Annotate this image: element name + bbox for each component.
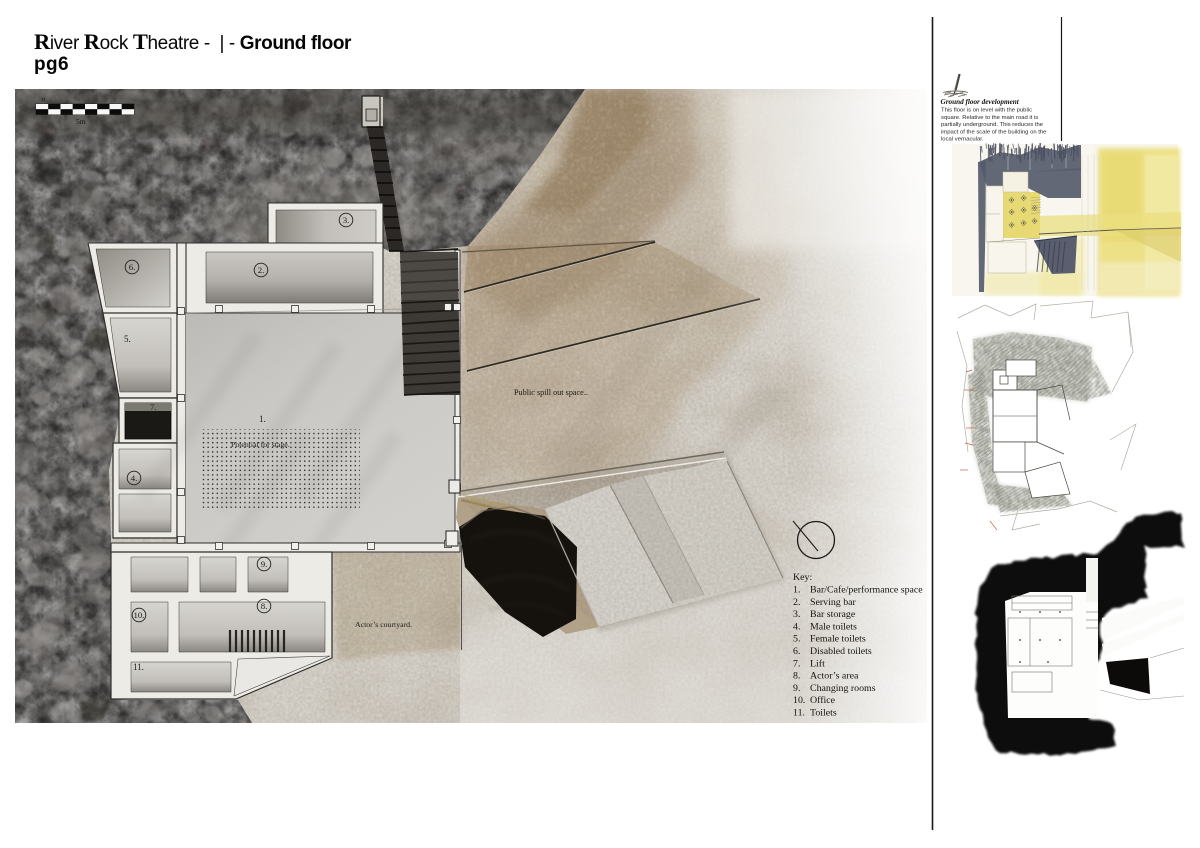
svg-text:10.: 10. <box>134 610 145 620</box>
svg-text:8.: 8. <box>793 671 800 682</box>
svg-text:Public spill out space..: Public spill out space.. <box>514 388 588 397</box>
svg-text:0: 0 <box>42 97 45 104</box>
svg-text:Disabled toilets: Disabled toilets <box>810 646 872 657</box>
svg-text:4.: 4. <box>793 621 800 632</box>
svg-text:Serving bar: Serving bar <box>810 597 857 608</box>
svg-text:Key:: Key: <box>793 572 812 583</box>
svg-text:Ground floor development: Ground floor development <box>941 98 1020 106</box>
svg-text:impact of the scale of the bui: impact of the scale of the building on t… <box>941 129 1047 135</box>
svg-text:Bar storage: Bar storage <box>810 609 856 620</box>
svg-text:Lift: Lift <box>810 658 825 669</box>
svg-text:7.: 7. <box>793 658 800 669</box>
svg-text:9.: 9. <box>793 683 800 694</box>
svg-text:3.: 3. <box>793 609 800 620</box>
svg-text:Changing rooms: Changing rooms <box>810 683 876 694</box>
svg-text:partially underground. This re: partially underground. This reduces the <box>941 122 1044 128</box>
svg-text:square. Relative to the main r: square. Relative to the main road it is <box>941 115 1038 121</box>
svg-text:5.: 5. <box>124 334 131 344</box>
svg-text:2.: 2. <box>258 265 265 275</box>
svg-text:Office: Office <box>810 695 836 706</box>
svg-text:4.: 4. <box>131 473 138 483</box>
svg-text:10.: 10. <box>793 695 805 706</box>
svg-text:Bar/Cafe/performance space: Bar/Cafe/performance space <box>810 585 923 596</box>
svg-text:8.: 8. <box>261 601 268 611</box>
svg-text:1.: 1. <box>793 585 800 596</box>
svg-text:Actor’s courtyard.: Actor’s courtyard. <box>355 620 412 629</box>
svg-text:Male toilets: Male toilets <box>810 621 857 632</box>
svg-text:5.: 5. <box>793 634 800 645</box>
svg-text:Actor’s area: Actor’s area <box>810 671 859 682</box>
svg-text:local vernacular.: local vernacular. <box>941 137 984 143</box>
svg-text:Female toilets: Female toilets <box>810 634 866 645</box>
svg-text:3.: 3. <box>343 215 350 225</box>
svg-text:2.: 2. <box>793 597 800 608</box>
svg-text:This floor is on level with th: This floor is on level with the public <box>941 108 1032 114</box>
svg-text:11.: 11. <box>133 662 144 672</box>
svg-text:11.: 11. <box>793 708 805 719</box>
svg-text:7.: 7. <box>150 402 156 412</box>
svg-text:5m: 5m <box>76 117 86 126</box>
svg-text:9.: 9. <box>261 559 268 569</box>
svg-text:6.: 6. <box>793 646 800 657</box>
svg-text:1.: 1. <box>259 414 266 424</box>
svg-text:6.: 6. <box>129 262 136 272</box>
svg-text:Toilets: Toilets <box>810 708 837 719</box>
svg-text:Potential for stage.: Potential for stage. <box>231 440 290 449</box>
